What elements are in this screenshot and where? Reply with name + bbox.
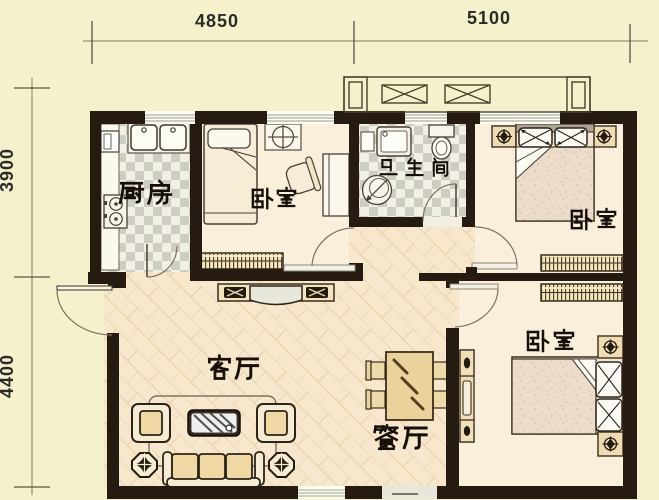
svg-text:5100: 5100: [467, 8, 511, 28]
svg-text:4850: 4850: [195, 11, 239, 31]
svg-text:3900: 3900: [0, 148, 17, 192]
svg-text:4400: 4400: [0, 354, 17, 398]
